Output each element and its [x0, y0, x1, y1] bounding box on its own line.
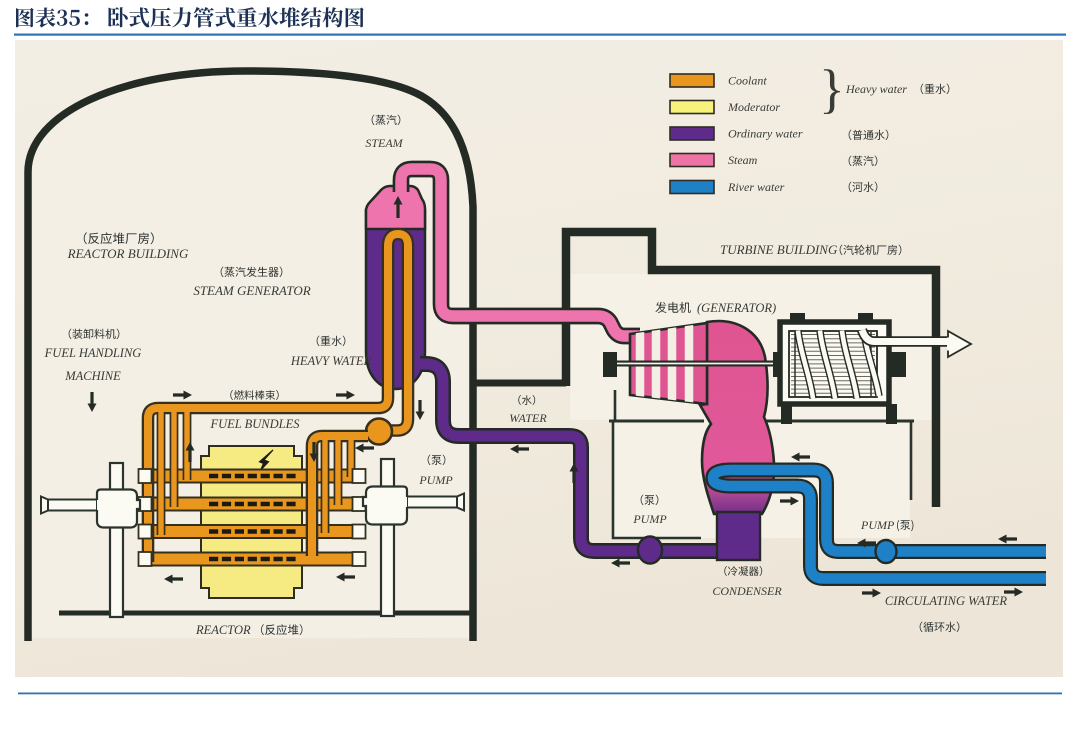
svg-text:Heavy water: Heavy water: [845, 82, 907, 96]
svg-text:FUEL HANDLING: FUEL HANDLING: [44, 346, 142, 360]
svg-text:MACHINE: MACHINE: [64, 369, 121, 383]
svg-text:STEAM GENERATOR: STEAM GENERATOR: [193, 283, 310, 298]
svg-text:Moderator: Moderator: [727, 100, 780, 114]
svg-text:PUMP: PUMP: [418, 473, 453, 487]
svg-text:(GENERATOR): (GENERATOR): [697, 301, 776, 315]
svg-text:REACTOR: REACTOR: [195, 623, 251, 637]
svg-text:}: }: [819, 59, 845, 119]
svg-text:CIRCULATING WATER: CIRCULATING WATER: [885, 594, 1008, 608]
svg-text:PUMP: PUMP: [632, 512, 667, 526]
svg-text:STEAM: STEAM: [365, 136, 403, 150]
svg-text:FUEL BUNDLES: FUEL BUNDLES: [209, 417, 300, 431]
svg-text:Ordinary water: Ordinary water: [728, 127, 803, 141]
svg-text:Coolant: Coolant: [728, 74, 767, 88]
svg-text:HEAVY WATER: HEAVY WATER: [290, 354, 372, 368]
svg-text:TURBINE BUILDING: TURBINE BUILDING: [720, 242, 838, 257]
svg-text:River water: River water: [727, 180, 785, 194]
svg-text:CONDENSER: CONDENSER: [712, 584, 782, 598]
svg-text:REACTOR BUILDING: REACTOR BUILDING: [67, 246, 189, 261]
svg-text:WATER: WATER: [509, 411, 547, 425]
svg-text:PUMP: PUMP: [860, 518, 895, 532]
svg-text:Steam: Steam: [728, 153, 758, 167]
